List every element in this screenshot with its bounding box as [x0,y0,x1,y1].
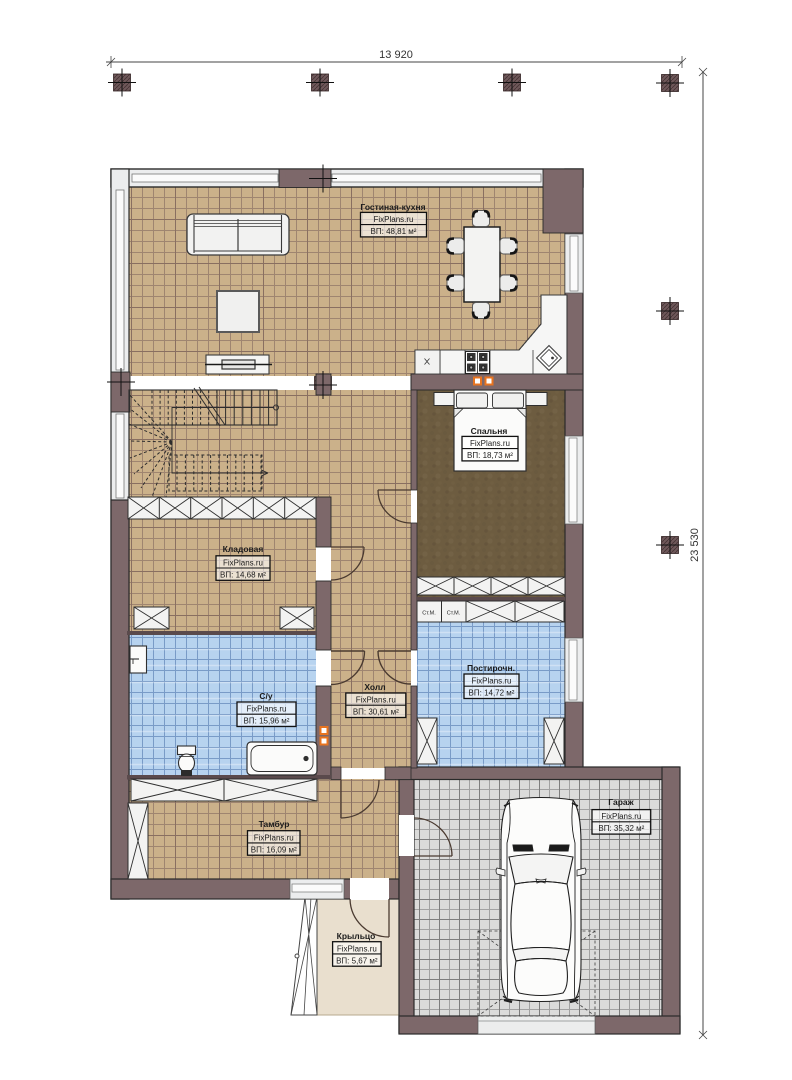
svg-text:ВП: 35,32 м²: ВП: 35,32 м² [598,824,644,833]
svg-text:Гостиная-кухня: Гостиная-кухня [360,202,425,212]
svg-text:ВП: 48,81 м²: ВП: 48,81 м² [371,227,417,236]
svg-text:Гараж: Гараж [608,797,634,807]
svg-text:С/у: С/у [259,691,273,701]
svg-text:FixPlans.ru: FixPlans.ru [337,944,377,953]
svg-text:Ст.М.: Ст.М. [422,611,436,617]
svg-text:FixPlans.ru: FixPlans.ru [373,215,413,224]
svg-text:FixPlans.ru: FixPlans.ru [356,696,396,705]
svg-text:ВП: 18,73 м²: ВП: 18,73 м² [467,451,513,460]
svg-text:Спальня: Спальня [471,426,508,436]
svg-text:Тамбур: Тамбур [259,819,290,829]
svg-text:ВП: 14,72 м²: ВП: 14,72 м² [469,689,515,698]
svg-text:ВП: 30,61 м²: ВП: 30,61 м² [353,708,399,717]
svg-text:ВП: 15,96 м²: ВП: 15,96 м² [244,717,290,726]
svg-text:23 530: 23 530 [689,528,701,562]
svg-text:FixPlans.ru: FixPlans.ru [470,439,510,448]
svg-text:ВП: 16,09 м²: ВП: 16,09 м² [251,845,297,854]
svg-text:FixPlans.ru: FixPlans.ru [246,705,286,714]
svg-text:FixPlans.ru: FixPlans.ru [254,833,294,842]
svg-text:FixPlans.ru: FixPlans.ru [223,558,263,567]
svg-text:Холл: Холл [364,682,385,692]
svg-text:ВП: 14,68 м²: ВП: 14,68 м² [220,570,266,579]
svg-text:Кладовая: Кладовая [223,544,264,554]
svg-text:Ст.М.: Ст.М. [447,611,461,617]
svg-text:13 920: 13 920 [379,49,413,61]
svg-text:FixPlans.ru: FixPlans.ru [471,677,511,686]
svg-text:Постирочн.: Постирочн. [467,663,515,673]
svg-text:ВП: 5,67 м²: ВП: 5,67 м² [336,956,378,965]
svg-text:Крыльцо: Крыльцо [337,931,376,941]
svg-text:FixPlans.ru: FixPlans.ru [601,812,641,821]
